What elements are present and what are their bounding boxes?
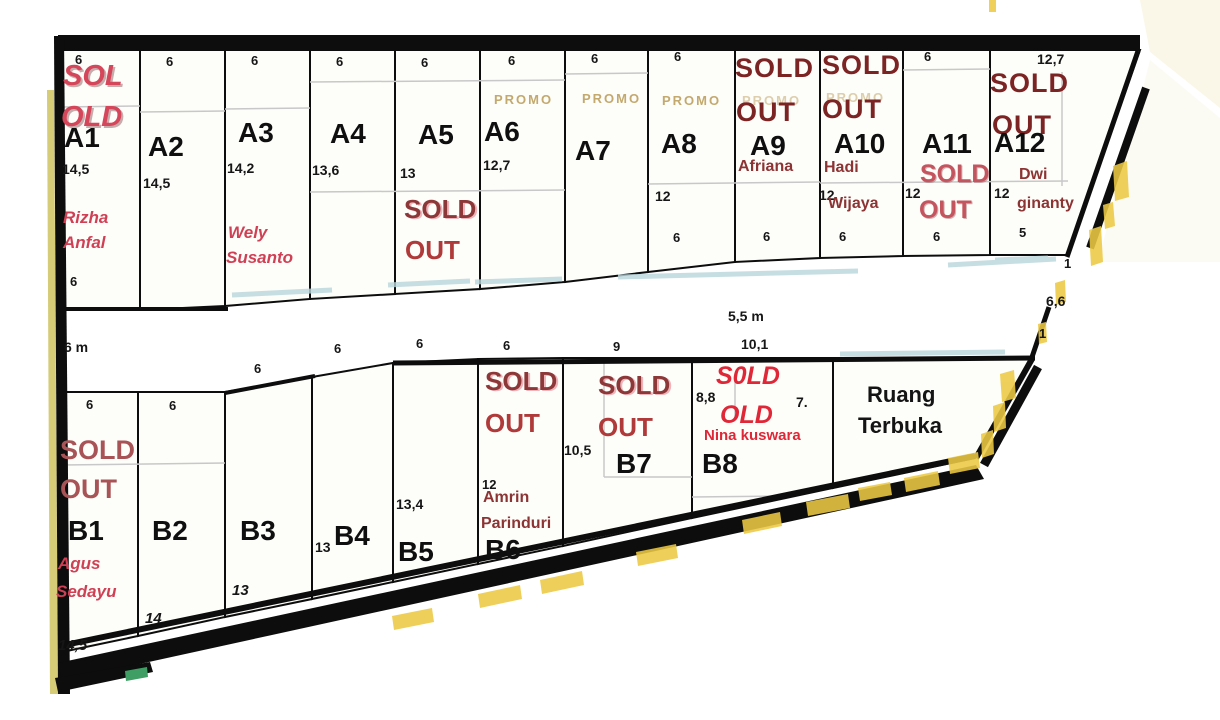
plot-a1-owner-line1: Rizha	[63, 209, 108, 226]
plot-a9-sold-line1: SOLD	[735, 55, 814, 82]
plot-b4-label: B4	[334, 522, 370, 550]
plot-a7-label: A7	[575, 137, 611, 165]
plot-a12-top-dim: 12,7	[1037, 52, 1064, 66]
plot-a3-side-dim: 14,2	[227, 161, 254, 175]
plot-b8-side-dim: 8,8	[696, 390, 715, 404]
plot-b2-top-dim: 6	[169, 399, 176, 412]
plot-b4-side-dim: 13	[315, 540, 331, 554]
plot-b7-sold-line1: SOLD	[598, 372, 670, 398]
plot-a9-sold-line2: OUT	[736, 99, 796, 126]
plot-a10-sold-line1: SOLD	[822, 52, 901, 79]
plot-b1-owner-line2: Sedayu	[56, 583, 116, 600]
plot-a9-bottom-dim: 6	[763, 230, 770, 243]
plot-a3-label: A3	[238, 119, 274, 147]
plot-a12-side-dim: 12	[994, 186, 1010, 200]
plot-a11-top-dim: 6	[924, 50, 931, 63]
plot-a1-owner-line2: Anfal	[63, 234, 106, 251]
plot-a11-label: A11	[922, 130, 972, 158]
plot-a12-bottom-dim: 5	[1019, 226, 1026, 239]
plot-b3-bottom-dim: 13	[232, 583, 249, 598]
plot-b8-sold-line2: OLD	[720, 403, 773, 428]
plot-a10-sold-line2: OUT	[822, 96, 882, 123]
plot-a8-label: A8	[661, 130, 697, 158]
plot-a12-owner-line1: Dwi	[1019, 167, 1047, 183]
plot-a3-owner-line2: Susanto	[226, 249, 293, 266]
plot-b8-sold-line1: S0LD	[716, 364, 780, 389]
plot-b7-label: B7	[616, 450, 652, 478]
plot-a11-sold-line1: SOLD	[920, 162, 989, 187]
plot-a9-label: A9	[750, 132, 786, 160]
plot-b8-right-dim: 7.	[796, 395, 808, 409]
plot-a6-top-dim: 6	[508, 54, 515, 67]
plot-a5-side-dim: 13	[400, 166, 416, 180]
plot-b1-top-dim: 6	[86, 398, 93, 411]
plot-a12-label: A12	[994, 129, 1045, 157]
plot-a1-sold-line1: SOL	[63, 62, 123, 91]
frontage-dim-b3: 6	[254, 362, 261, 375]
plot-b1-bottom-dim: 14,5	[58, 638, 87, 653]
plot-a8-bottom-dim: 6	[673, 231, 680, 244]
plot-b1-sold-line2: OUT	[60, 476, 117, 503]
plot-a1-side-dim: 14,5	[62, 162, 89, 176]
plot-a3-top-dim: 6	[251, 54, 258, 67]
plot-b6-owner-line1: Amrin	[483, 490, 529, 506]
plot-a4-top-dim: 6	[336, 55, 343, 68]
plot-a10-bottom-dim: 6	[839, 230, 846, 243]
plot-a11-sold-line2: OUT	[919, 198, 972, 223]
plot-a8-promo-tag: PROMO	[662, 94, 721, 107]
plot-a4-label: A4	[330, 120, 366, 148]
frontage-dim-b6: 6	[503, 339, 510, 352]
left-road-width-label: 6 m	[64, 340, 88, 354]
plot-a5-sold-line2: OUT	[405, 237, 460, 263]
plot-b7-sold-line2: OUT	[598, 414, 653, 440]
plot-a5-top-dim: 6	[421, 56, 428, 69]
plot-a10-owner-line1: Hadi	[824, 160, 859, 176]
plot-a1-bottom-dim: 6	[70, 275, 77, 288]
plot-b3-label: B3	[240, 517, 276, 545]
plot-b6-label: B6	[485, 536, 521, 564]
plot-a2-label: A2	[148, 133, 184, 161]
plot-b8-owner-line1: Nina kuswara	[704, 428, 801, 443]
plot-b7-side-dim: 10,5	[564, 443, 591, 457]
main-road-width-label: 5,5 m	[728, 309, 764, 323]
plot-a9-owner-line1: Afriana	[738, 159, 793, 175]
land-plot-site-plan: 6 SOL OLD A1 14,5 Rizha Anfal 6 6 A2 14,…	[0, 0, 1220, 720]
plot-b5-label: B5	[398, 538, 434, 566]
plot-a12-owner-line2: ginanty	[1017, 196, 1074, 212]
plot-a4-side-dim: 13,6	[312, 163, 339, 177]
plot-b2-label: B2	[152, 517, 188, 545]
plot-a2-top-dim: 6	[166, 55, 173, 68]
frontage-dim-b5: 6	[416, 337, 423, 350]
plot-b5-side-dim: 13,4	[396, 497, 423, 511]
right-edge-dim-bottom: 1	[1039, 327, 1046, 340]
right-edge-dim-middle: 6,6	[1046, 294, 1065, 308]
plot-b1-owner-line1: Agus	[58, 555, 101, 572]
plot-a11-bottom-dim: 6	[933, 230, 940, 243]
plot-a5-sold-line1: SOLD	[404, 196, 476, 222]
plot-b6-sold-line2: OUT	[485, 410, 540, 436]
plot-a6-label: A6	[484, 118, 520, 146]
frontage-dim-b4: 6	[334, 342, 341, 355]
open-space-label-line2: Terbuka	[858, 415, 942, 437]
plot-a6-side-dim: 12,7	[483, 158, 510, 172]
plot-a8-top-dim: 6	[674, 50, 681, 63]
plot-a7-promo-tag: PROMO	[582, 92, 641, 105]
plot-a10-owner-line2: Wijaya	[828, 196, 879, 212]
north-boundary-bar	[58, 35, 1140, 51]
open-space-label-line1: Ruang	[867, 384, 935, 406]
plot-a6-promo-tag: PROMO	[494, 93, 553, 106]
plot-a7-top-dim: 6	[591, 52, 598, 65]
plot-a10-label: A10	[834, 130, 885, 158]
plot-b1-label: B1	[68, 517, 104, 545]
site-plan-drawing	[0, 0, 1220, 720]
plot-b8-label: B8	[702, 450, 738, 478]
plot-a12-sold-line1: SOLD	[990, 70, 1069, 97]
plot-b6-sold-line1: SOLD	[485, 368, 557, 394]
plot-b1-sold-line1: SOLD	[60, 437, 135, 464]
plot-b2-bottom-dim: 14	[145, 611, 162, 626]
right-edge-dim-top: 1	[1064, 257, 1071, 270]
frontage-dim-b8: 10,1	[741, 337, 768, 351]
plot-a5-label: A5	[418, 121, 454, 149]
plot-a8-side-dim: 12	[655, 189, 671, 203]
frontage-dim-b7: 9	[613, 340, 620, 353]
plot-a2-side-dim: 14,5	[143, 176, 170, 190]
plot-a3-owner-line1: Wely	[228, 224, 267, 241]
plot-b6-owner-line2: Parinduri	[481, 516, 551, 532]
plot-a1-label: A1	[64, 124, 100, 152]
